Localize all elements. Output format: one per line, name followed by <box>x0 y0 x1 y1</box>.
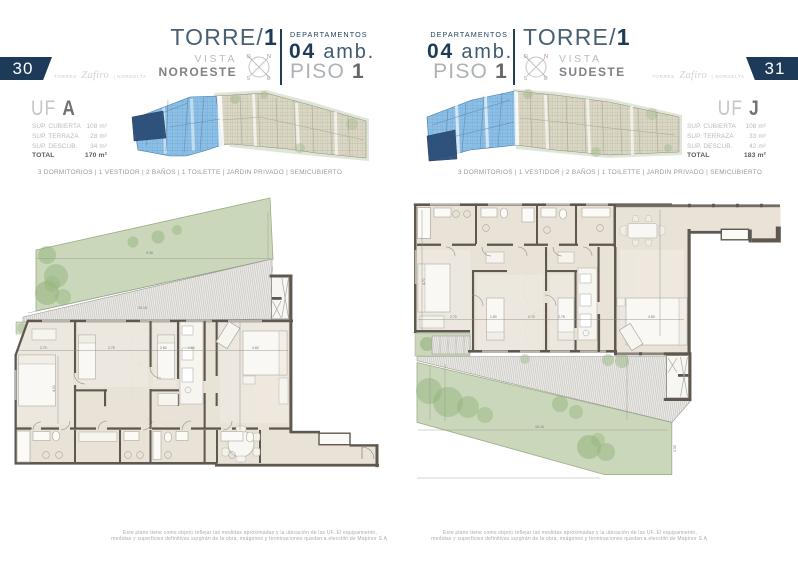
svg-text:O: O <box>247 54 252 60</box>
svg-text:2.50: 2.50 <box>673 445 677 452</box>
svg-text:O: O <box>524 54 529 60</box>
svg-text:2.70: 2.70 <box>528 315 535 319</box>
svg-text:E: E <box>544 76 548 82</box>
svg-text:4.50: 4.50 <box>648 315 655 319</box>
svg-text:2.70: 2.70 <box>40 346 47 350</box>
svg-text:N: N <box>544 54 548 60</box>
svg-text:1.50: 1.50 <box>188 346 195 350</box>
svg-text:2.75: 2.75 <box>558 315 565 319</box>
svg-text:15.15: 15.15 <box>138 306 147 310</box>
svg-text:S: S <box>524 76 528 82</box>
svg-text:4.00: 4.00 <box>52 385 56 392</box>
svg-text:2.70: 2.70 <box>450 315 457 319</box>
svg-text:2.75: 2.75 <box>108 346 115 350</box>
svg-text:E: E <box>267 76 271 82</box>
svg-text:N: N <box>267 54 271 60</box>
svg-text:16.10: 16.10 <box>535 425 544 429</box>
svg-text:S: S <box>247 76 251 82</box>
svg-text:2.60: 2.60 <box>160 346 167 350</box>
svg-text:1.50: 1.50 <box>490 315 497 319</box>
svg-text:4.70: 4.70 <box>422 278 426 285</box>
svg-text:4.60: 4.60 <box>252 346 259 350</box>
svg-text:9.06: 9.06 <box>146 251 153 255</box>
